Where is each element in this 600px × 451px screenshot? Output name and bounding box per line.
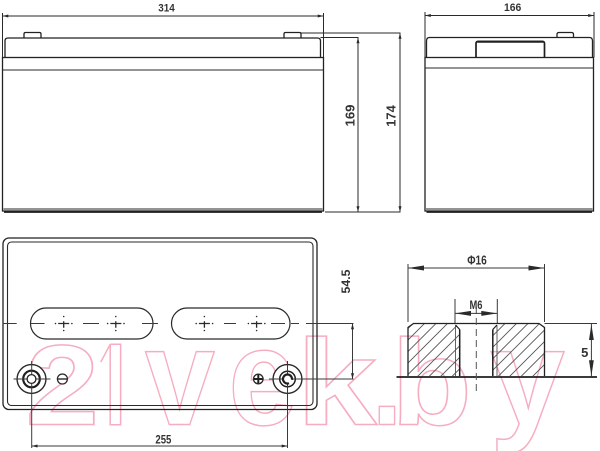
svg-text:k: k <box>297 315 377 451</box>
svg-text:Φ16: Φ16 <box>467 254 487 268</box>
svg-text:314: 314 <box>158 3 175 15</box>
svg-text:M6: M6 <box>470 300 483 312</box>
svg-text:169: 169 <box>343 105 358 127</box>
svg-text:54.5: 54.5 <box>339 269 353 293</box>
svg-text:166: 166 <box>504 2 521 14</box>
svg-text:5: 5 <box>581 345 588 360</box>
svg-text:255: 255 <box>155 433 171 447</box>
svg-text:174: 174 <box>384 105 399 127</box>
